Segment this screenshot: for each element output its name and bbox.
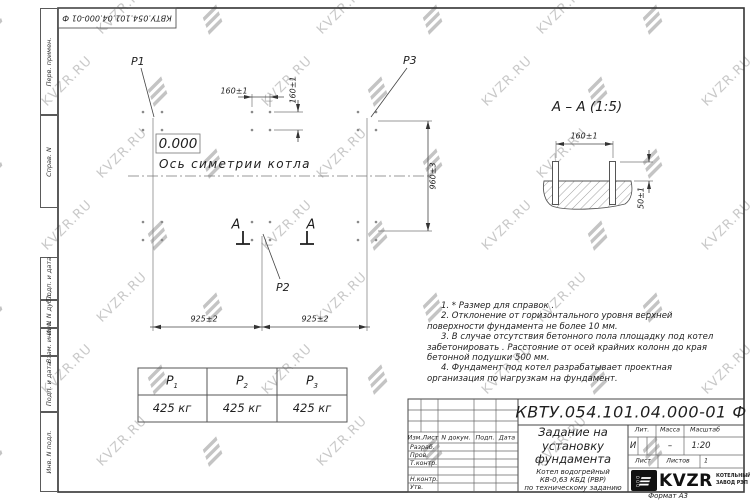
- sheets-value: 1: [704, 458, 708, 465]
- margin-cell-podp-data-2: Подп. и дата: [40, 356, 58, 412]
- logo-kvzr-text: KVZR: [659, 471, 713, 491]
- change-header-data: Дата: [499, 435, 515, 442]
- note-1: 1. * Размер для справок .: [427, 301, 729, 311]
- section-dim-protrusion: 50±1: [637, 187, 646, 209]
- title-block-doc-number: КВТУ.054.101.04.000-01 Ф: [515, 403, 746, 422]
- extension-lines: [153, 94, 432, 331]
- technical-notes: 1. * Размер для справок . 2. Отклонение …: [427, 301, 729, 384]
- margin-label: Подп. и дата: [45, 362, 53, 406]
- dim-span-left: 925±2: [190, 315, 217, 324]
- sheets-header: Листов: [666, 458, 690, 465]
- logo-company-line1: КОТЕЛЬНЫЙ: [716, 474, 750, 479]
- margin-cell-inv-podl: Инв. N подл.: [40, 412, 58, 492]
- dim-span-right: 925±2: [301, 315, 328, 324]
- drawing-linework: [0, 0, 750, 500]
- note-3: 3. В случае отсутствия бетонного пола пл…: [427, 332, 729, 363]
- section-cut-marks: [236, 231, 314, 244]
- scale-value: 1:20: [691, 441, 710, 451]
- margin-cell-perv-primen: Перв. примен.: [40, 8, 58, 115]
- margin-label: Перв. примен.: [45, 37, 53, 86]
- mass-header: Масса: [660, 427, 680, 434]
- margin-label: Инв. N подл.: [45, 431, 53, 474]
- dim-bolt-spacing-v: 160±1: [289, 76, 298, 103]
- section-mark-letter-left: A: [232, 218, 241, 233]
- signature-row-razrab: Разраб.: [410, 444, 435, 451]
- lit-header: Лит.: [635, 427, 650, 434]
- title-block-subtitle: Котел водогрейный КВ-0,63 КБД (РВР) по т…: [518, 468, 628, 492]
- section-dim-bolt-spacing: 160±1: [570, 132, 597, 141]
- change-header-n-dokum: N докум.: [441, 435, 470, 442]
- change-header-podp: Подп.: [475, 435, 494, 442]
- section-extension-lines: [556, 141, 653, 181]
- load-table-header-p3: P3: [306, 372, 318, 390]
- load-point-p1-label: P1: [131, 55, 145, 68]
- format-label: Формат А3: [648, 492, 688, 500]
- scale-header: Масштаб: [690, 427, 720, 434]
- load-point-p2-label: P2: [276, 281, 290, 294]
- kvzr-logo-icon: ООО ≡: [631, 470, 657, 491]
- load-table-header-p1: P1: [166, 372, 178, 390]
- margin-cell-vzam-inv: Взам. инв. N: [40, 328, 58, 356]
- dim-bolt-spacing-h: 160±1: [220, 87, 247, 96]
- load-table-header-p2: P2: [236, 372, 248, 390]
- note-4: 4. Фундамент под котел разрабатывает про…: [427, 363, 729, 384]
- load-table-value-p3: 425 кг: [293, 401, 332, 415]
- dim-foundation-depth: 960±3: [429, 162, 438, 189]
- signature-row-nkontr: Н.контр.: [410, 476, 438, 483]
- load-table-value-p2: 425 кг: [223, 401, 262, 415]
- margin-cell-sprav-n: Справ. N: [40, 115, 58, 208]
- load-table-value-p1: 425 кг: [153, 401, 192, 415]
- elevation-mark: 0.000: [159, 136, 198, 152]
- lit-value: И: [630, 441, 636, 451]
- signature-row-tkontr: Т.контр.: [410, 460, 437, 467]
- sheet-header: Лист: [635, 458, 651, 465]
- margin-label: Справ. N: [45, 147, 53, 177]
- logo-company-line2: ЗАВОД РЭП: [716, 481, 748, 486]
- mass-value: –: [668, 441, 672, 451]
- signature-row-prov: Пров.: [410, 452, 428, 459]
- load-point-p3-label: P3: [403, 54, 417, 67]
- change-header-izm-list: Изм.Лист: [408, 435, 439, 442]
- note-2: 2. Отклонение от горизонтального уровня …: [427, 311, 729, 332]
- section-view-title: A – A (1:5): [552, 99, 622, 115]
- signature-row-utv: Утв.: [410, 484, 423, 491]
- top-stamp-doc-number: КВТУ.054.101.04.000-01 Ф: [62, 14, 172, 23]
- title-block-title: Задание на установку фундамента: [518, 426, 628, 467]
- section-mark-letter-right: A: [307, 218, 316, 233]
- drawing-sheet: ≡KVZR.RU≡KVZR.RU≡KVZR.RU≡KVZR.RU≡KVZR.RU…: [0, 0, 750, 500]
- boiler-axis-label: Ось симетрии котла: [159, 157, 311, 171]
